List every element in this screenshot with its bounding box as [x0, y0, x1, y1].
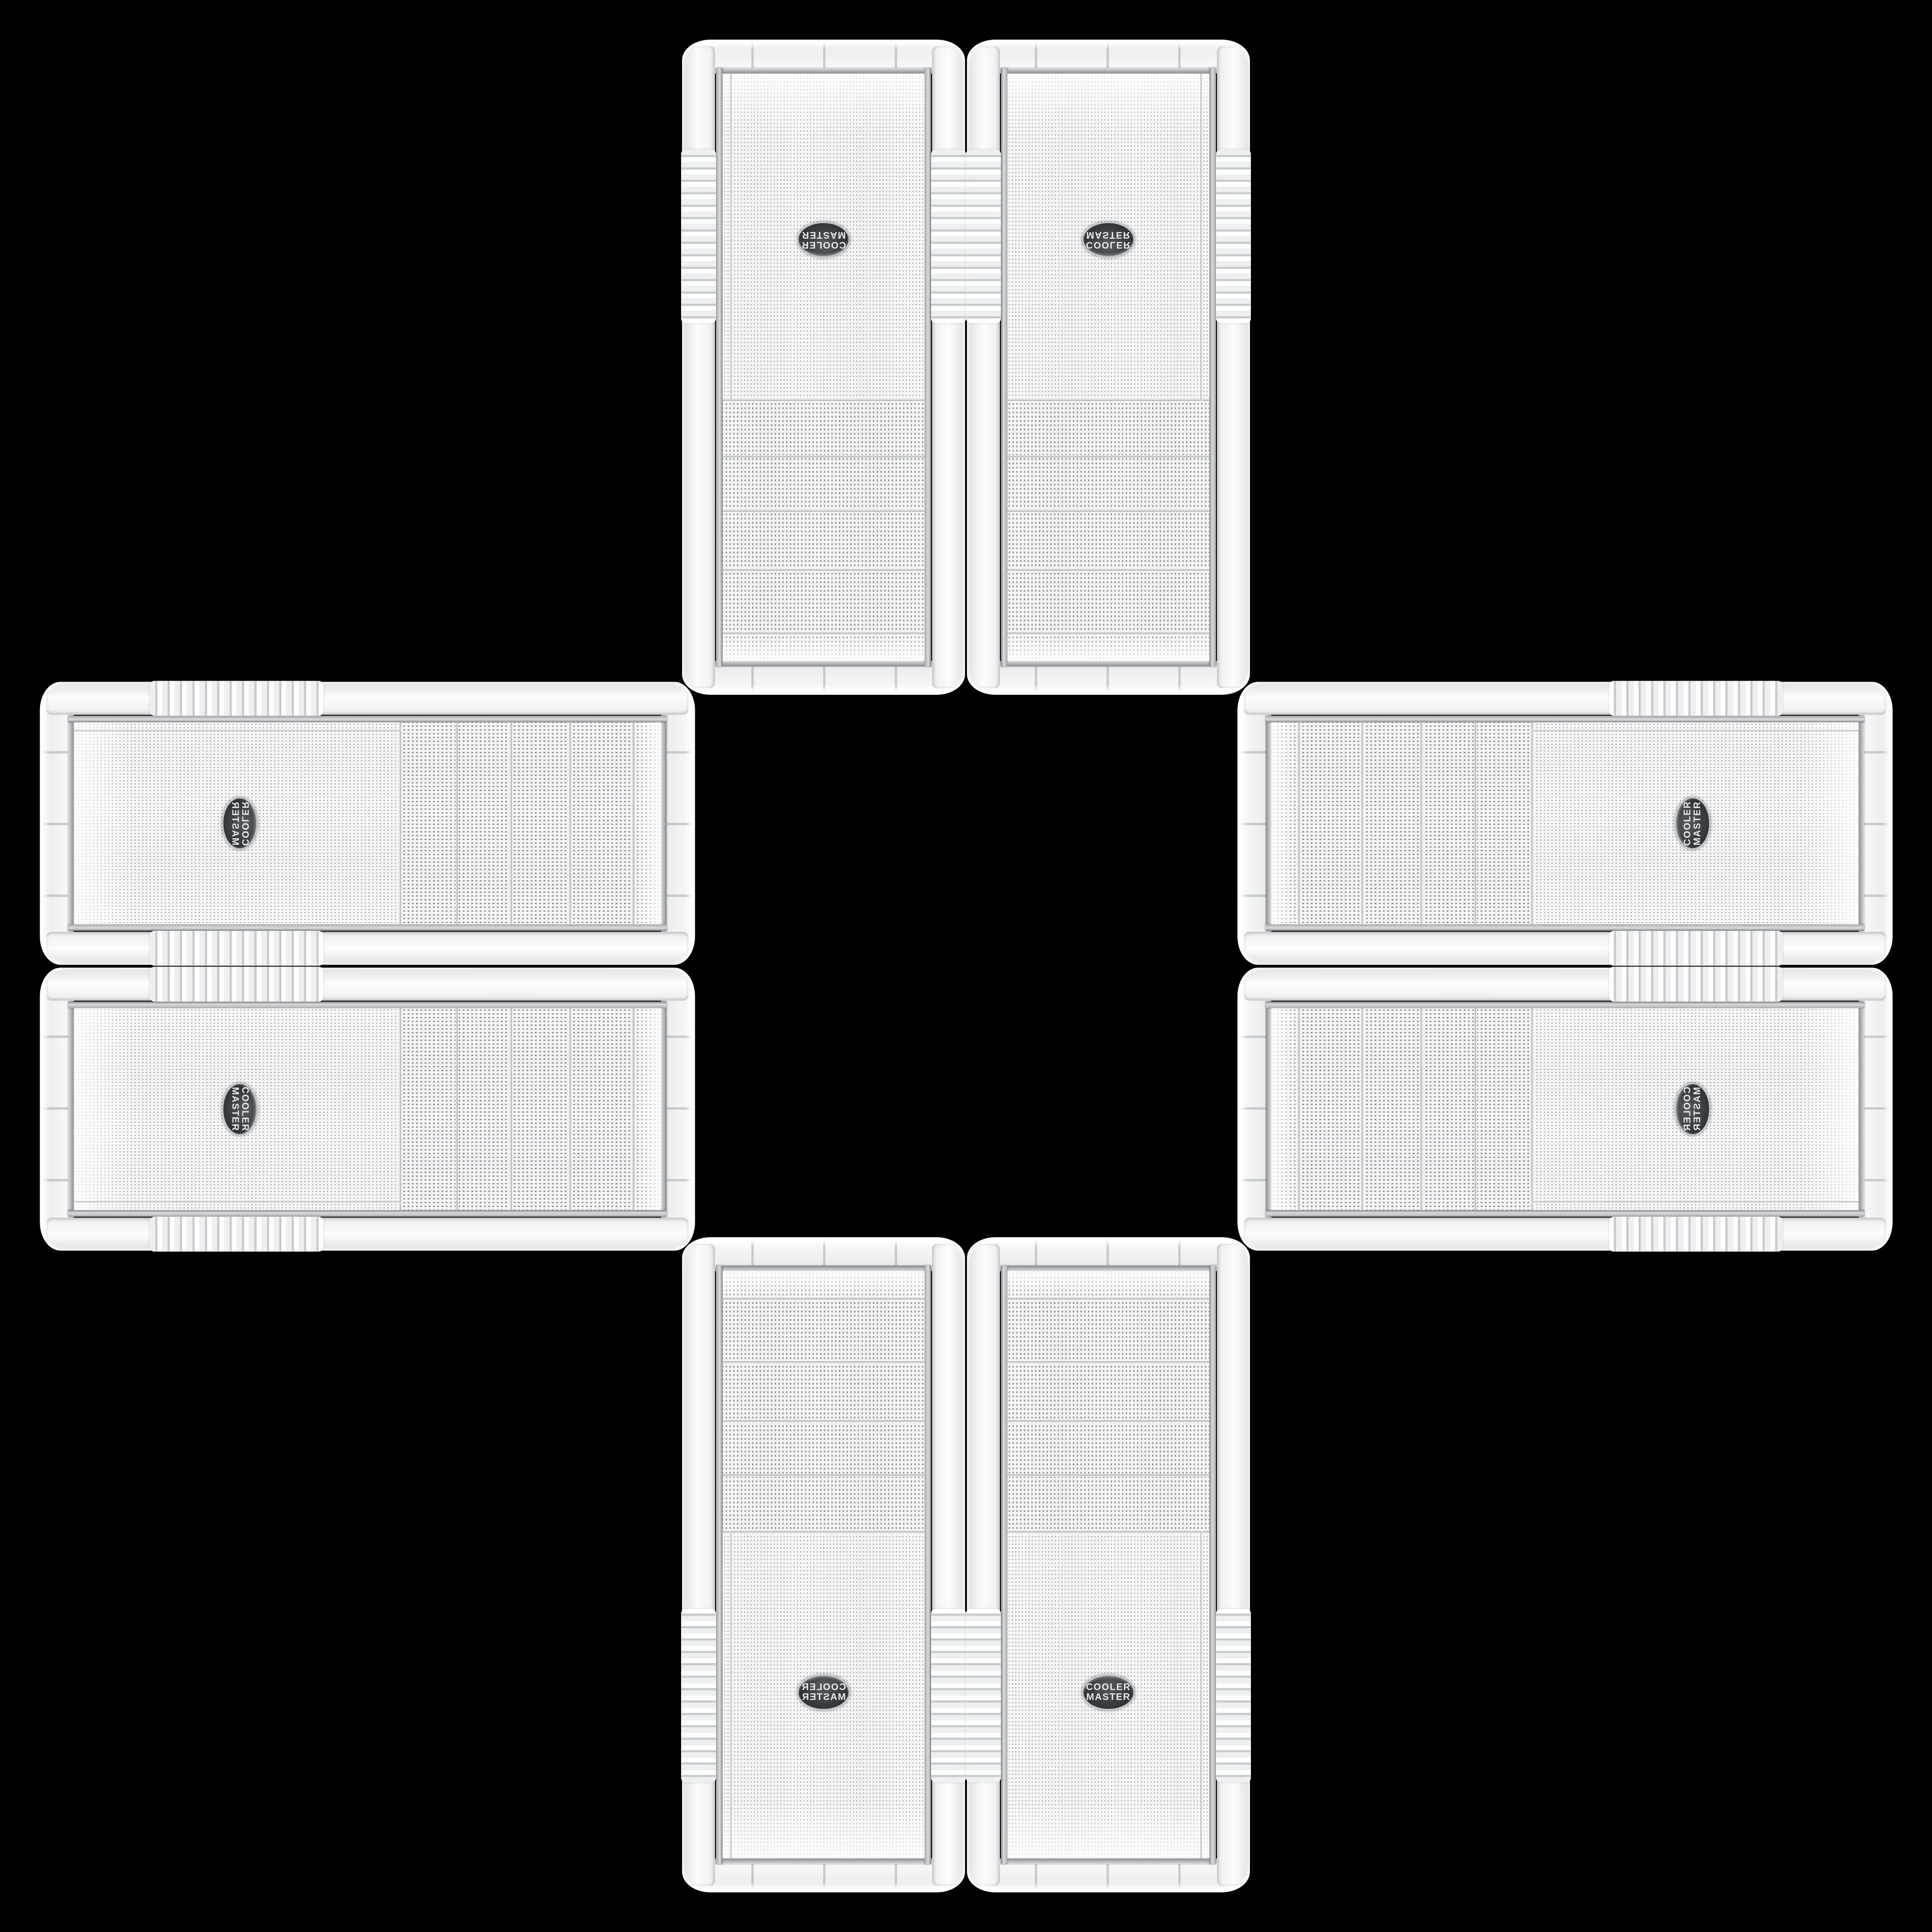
- chrome-trim-bottom: [716, 1858, 931, 1864]
- case-top-left-vertical: COOLER MASTER: [682, 40, 965, 695]
- chrome-trim-right: [1209, 68, 1216, 666]
- bay-separator: [1420, 722, 1423, 924]
- ribbed-grip: [931, 1609, 966, 1782]
- bay-separator: [632, 1008, 634, 1210]
- bay-separator: [1008, 1474, 1209, 1477]
- badge-text-line1: COOLER: [1086, 1682, 1131, 1692]
- drive-bay-mesh-strips: [1271, 722, 1531, 924]
- bay-separator: [1474, 722, 1477, 924]
- mesh-seam: [1200, 74, 1202, 401]
- mesh-seam: [74, 1201, 401, 1203]
- chrome-trim-bottom: [68, 716, 74, 931]
- ribbed-grip: [931, 150, 966, 323]
- ribbed-grip: [966, 1609, 1001, 1782]
- front-mesh-panel: COOLER MASTER: [74, 1008, 661, 1210]
- bay-separator: [1008, 509, 1209, 512]
- case-right-rail: [1217, 1244, 1250, 1886]
- case-right-rail: [1217, 46, 1250, 688]
- mesh-seam: [1531, 729, 1858, 731]
- badge-text-line2: MASTER: [801, 1692, 846, 1702]
- bay-separator: [723, 568, 924, 571]
- front-mesh-panel: COOLER MASTER: [1271, 722, 1858, 924]
- bay-separator: [1420, 1008, 1423, 1210]
- front-mesh-panel: COOLER MASTER: [1008, 74, 1209, 661]
- ribbed-grip: [1216, 150, 1251, 323]
- front-mesh-panel: COOLER MASTER: [723, 1271, 924, 1858]
- badge-text-line2: MASTER: [1086, 230, 1131, 240]
- badge-text-line1: COOLER: [801, 1682, 846, 1692]
- chrome-trim-bottom: [68, 1001, 74, 1216]
- ribbed-grip: [1609, 1216, 1782, 1251]
- bay-separator: [1531, 722, 1533, 924]
- bay-separator: [723, 1531, 924, 1533]
- badge-text-line2: MASTER: [1692, 801, 1702, 845]
- case-right-rail: [46, 682, 688, 715]
- ribbed-grip: [681, 150, 716, 323]
- bay-separator: [455, 1008, 458, 1210]
- case-left-rail: [46, 967, 688, 1000]
- bay-separator: [723, 1298, 924, 1300]
- front-mesh-panel: COOLER MASTER: [74, 722, 661, 924]
- badge-text-line1: COOLER: [1682, 800, 1692, 845]
- bay-separator: [399, 1008, 401, 1210]
- chrome-trim-left: [924, 1266, 931, 1864]
- case-right-rail: [682, 1244, 715, 1886]
- mesh-seam: [1200, 1531, 1202, 1858]
- bay-separator: [1474, 1008, 1477, 1210]
- badge-text-line2: MASTER: [801, 230, 846, 240]
- case-left-rail: [46, 932, 688, 965]
- case-right-top-horizontal: COOLER MASTER: [1237, 682, 1892, 965]
- front-mesh-panel: COOLER MASTER: [1271, 1008, 1858, 1210]
- badge-text-line2: MASTER: [230, 1087, 240, 1131]
- badge-text-line1: COOLER: [1682, 1086, 1692, 1131]
- bay-separator: [723, 399, 924, 401]
- chrome-trim-top: [661, 1001, 666, 1216]
- drive-bay-mesh-strips: [401, 1008, 661, 1210]
- chrome-trim-top: [1001, 661, 1216, 666]
- chrome-trim-bottom: [716, 68, 931, 74]
- mesh-seam: [74, 729, 401, 731]
- bay-separator: [1008, 1298, 1209, 1300]
- ribbed-grip: [1609, 966, 1782, 1001]
- chrome-trim-top: [716, 1266, 931, 1271]
- bay-separator: [1008, 399, 1209, 401]
- bay-separator: [723, 632, 924, 634]
- ribbed-grip: [1609, 681, 1782, 716]
- mesh-seam: [1531, 1201, 1858, 1203]
- case-left-rail: [967, 1244, 1000, 1886]
- drive-bay-mesh-strips: [1008, 401, 1209, 661]
- chrome-trim-right: [1266, 716, 1864, 722]
- chrome-trim-right: [716, 1266, 723, 1864]
- ribbed-grip: [150, 966, 323, 1001]
- chrome-trim-right: [68, 1210, 666, 1216]
- bay-separator: [1361, 1008, 1364, 1210]
- case-left-bottom-horizontal: COOLER MASTER: [40, 967, 695, 1250]
- badge-text-line2: MASTER: [1692, 1087, 1702, 1131]
- bay-separator: [1008, 568, 1209, 571]
- chrome-trim-bottom: [1858, 716, 1864, 931]
- chrome-trim-top: [1001, 1266, 1216, 1271]
- bay-separator: [1008, 1361, 1209, 1364]
- chrome-trim-left: [68, 924, 666, 931]
- ribbed-grip: [966, 150, 1001, 323]
- bay-separator: [455, 722, 458, 924]
- chrome-trim-top: [661, 716, 666, 931]
- chrome-trim-bottom: [1001, 68, 1216, 74]
- bay-separator: [632, 722, 634, 924]
- bay-separator: [1298, 1008, 1300, 1210]
- case-right-rail: [1244, 1217, 1886, 1250]
- chrome-trim-top: [716, 661, 931, 666]
- chrome-trim-left: [924, 68, 931, 666]
- cooler-master-logo-badge: COOLER MASTER: [1674, 797, 1710, 849]
- case-left-top-horizontal: COOLER MASTER: [40, 682, 695, 965]
- cooler-master-logo-badge: COOLER MASTER: [222, 1083, 258, 1135]
- drive-bay-mesh-strips: [1008, 1271, 1209, 1531]
- bay-separator: [509, 722, 512, 924]
- chrome-trim-left: [1001, 68, 1008, 666]
- case-bottom-right-vertical: COOLER MASTER: [967, 1237, 1250, 1892]
- bay-separator: [723, 1474, 924, 1477]
- ribbed-grip: [150, 681, 323, 716]
- badge-text-line2: MASTER: [230, 801, 240, 845]
- drive-bay-mesh-strips: [723, 1271, 924, 1531]
- front-mesh-panel: COOLER MASTER: [723, 74, 924, 661]
- mesh-seam: [730, 1531, 732, 1858]
- ribbed-grip: [1216, 1609, 1251, 1782]
- chrome-trim-left: [68, 1001, 666, 1008]
- mesh-seam: [730, 74, 732, 401]
- cooler-master-logo-badge: COOLER MASTER: [1082, 1674, 1135, 1710]
- case-left-rail: [1244, 932, 1886, 965]
- cooler-master-logo-badge: COOLER MASTER: [1082, 222, 1135, 258]
- ribbed-grip: [150, 1216, 323, 1251]
- bay-separator: [399, 722, 401, 924]
- cooler-master-logo-badge: COOLER MASTER: [222, 797, 258, 849]
- bay-separator: [723, 1361, 924, 1364]
- bay-separator: [723, 455, 924, 458]
- drive-bay-mesh-strips: [723, 401, 924, 661]
- ribbed-grip: [150, 931, 323, 966]
- badge-text-line1: COOLER: [1086, 240, 1131, 250]
- chrome-trim-right: [1209, 1266, 1216, 1864]
- case-right-rail: [682, 46, 715, 688]
- badge-text-line1: COOLER: [240, 1086, 250, 1131]
- bay-separator: [1008, 1420, 1209, 1423]
- bay-separator: [568, 1008, 571, 1210]
- chrome-trim-right: [1266, 1210, 1864, 1216]
- cooler-master-logo-badge: COOLER MASTER: [797, 1674, 850, 1710]
- bay-separator: [1008, 632, 1209, 634]
- drive-bay-mesh-strips: [1271, 1008, 1531, 1210]
- chrome-trim-top: [1266, 716, 1271, 931]
- chrome-trim-bottom: [1858, 1001, 1864, 1216]
- case-left-rail: [1244, 967, 1886, 1000]
- badge-text-line1: COOLER: [240, 800, 250, 845]
- chrome-trim-right: [716, 68, 723, 666]
- ribbed-grip: [1609, 931, 1782, 966]
- collage-canvas: { "canvas": { "width": 4096, "height": 4…: [0, 0, 1932, 1932]
- bay-separator: [509, 1008, 512, 1210]
- badge-text-line1: COOLER: [801, 240, 846, 250]
- case-right-rail: [1244, 682, 1886, 715]
- cooler-master-logo-badge: COOLER MASTER: [1674, 1083, 1710, 1135]
- bay-separator: [723, 509, 924, 512]
- bay-separator: [1531, 1008, 1533, 1210]
- badge-text-line2: MASTER: [1086, 1692, 1131, 1702]
- chrome-trim-left: [1001, 1266, 1008, 1864]
- case-left-rail: [967, 46, 1000, 688]
- case-bottom-left-vertical: COOLER MASTER: [682, 1237, 965, 1892]
- bay-separator: [1008, 455, 1209, 458]
- chrome-trim-top: [1266, 1001, 1271, 1216]
- bay-separator: [723, 1420, 924, 1423]
- ribbed-grip: [681, 1609, 716, 1782]
- case-left-rail: [932, 1244, 965, 1886]
- case-left-rail: [932, 46, 965, 688]
- case-right-bottom-horizontal: COOLER MASTER: [1237, 967, 1892, 1250]
- chrome-trim-left: [1266, 924, 1864, 931]
- chrome-trim-left: [1266, 1001, 1864, 1008]
- bay-separator: [1298, 722, 1300, 924]
- bay-separator: [1361, 722, 1364, 924]
- case-right-rail: [46, 1217, 688, 1250]
- chrome-trim-right: [68, 716, 666, 722]
- case-top-right-vertical: COOLER MASTER: [967, 40, 1250, 695]
- bay-separator: [1008, 1531, 1209, 1533]
- cooler-master-logo-badge: COOLER MASTER: [797, 222, 850, 258]
- chrome-trim-bottom: [1001, 1858, 1216, 1864]
- bay-separator: [568, 722, 571, 924]
- front-mesh-panel: COOLER MASTER: [1008, 1271, 1209, 1858]
- drive-bay-mesh-strips: [401, 722, 661, 924]
